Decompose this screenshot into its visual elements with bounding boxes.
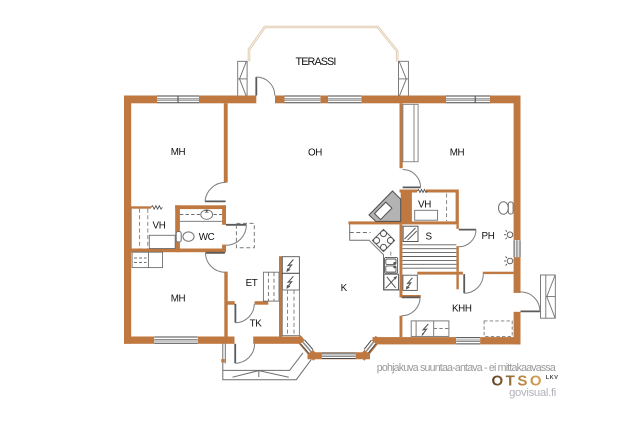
svg-text:S: S bbox=[426, 231, 433, 242]
svg-text:OH: OH bbox=[308, 147, 322, 158]
svg-text:WC: WC bbox=[199, 232, 215, 243]
svg-text:ET: ET bbox=[246, 278, 258, 289]
svg-text:MH: MH bbox=[171, 294, 186, 305]
svg-text:MH: MH bbox=[450, 148, 465, 159]
svg-text:LKV: LKV bbox=[546, 375, 559, 381]
svg-text:KHH: KHH bbox=[452, 304, 472, 315]
svg-text:VH: VH bbox=[153, 221, 166, 232]
svg-text:K: K bbox=[341, 283, 348, 294]
svg-text:VH: VH bbox=[418, 199, 431, 210]
svg-text:TERASSI: TERASSI bbox=[296, 56, 336, 68]
svg-text:PH: PH bbox=[482, 231, 495, 242]
svg-text:govisual.fi: govisual.fi bbox=[509, 387, 556, 399]
svg-text:TK: TK bbox=[250, 319, 263, 330]
svg-text:MH: MH bbox=[171, 147, 186, 158]
